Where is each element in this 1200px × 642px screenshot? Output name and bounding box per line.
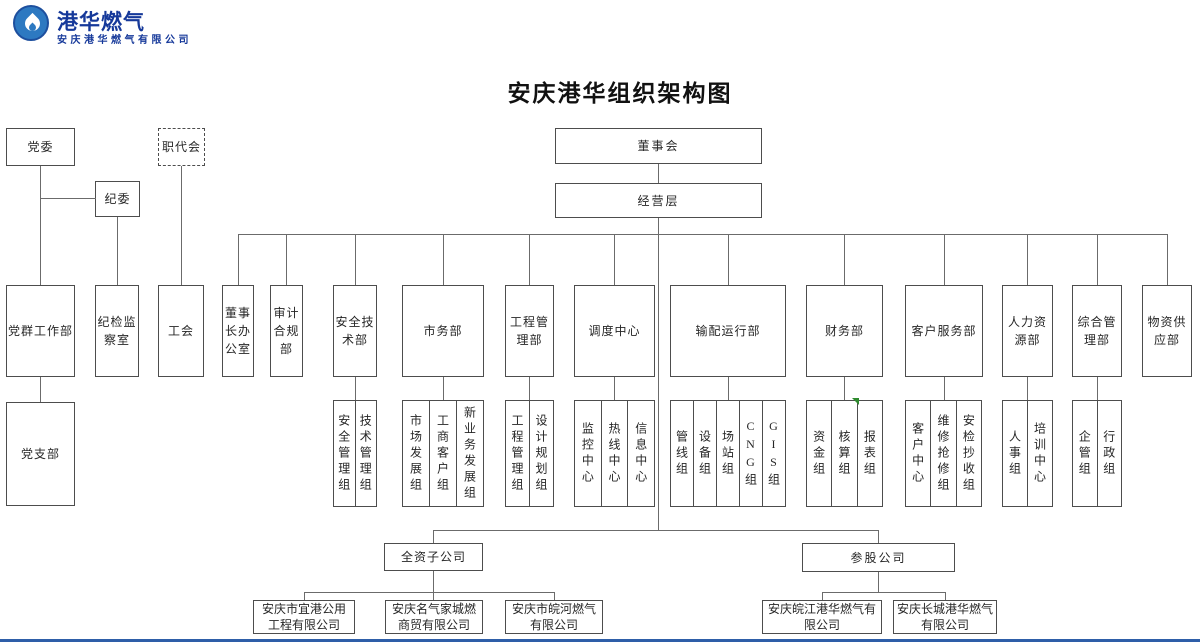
page-title: 安庆港华组织架构图 — [450, 74, 790, 108]
logo-company-name: 安庆港华燃气有限公司 — [57, 31, 192, 46]
box-invested-companies: 参股公司 — [802, 543, 955, 572]
team-reporting: 报表组 — [857, 400, 883, 507]
connector-line — [878, 572, 879, 592]
team-technology-management: 技术管理组 — [355, 400, 378, 507]
team-station: 场站组 — [716, 400, 740, 507]
connector-line — [40, 198, 96, 199]
connector-line — [355, 234, 356, 285]
connector-line — [728, 377, 729, 400]
connector-line — [1097, 377, 1098, 400]
team-training-center: 培训中心 — [1027, 400, 1053, 507]
box-management-level: 经营层 — [555, 183, 762, 218]
connector-line — [443, 377, 444, 400]
company-wanjiang-towngas: 安庆皖江港华燃气有 限公司 — [762, 600, 882, 634]
team-gis: GIS组 — [762, 400, 786, 507]
connector-line — [658, 218, 659, 530]
connector-line — [944, 234, 945, 285]
connector-line — [1027, 234, 1028, 285]
connector-line — [1027, 377, 1028, 400]
team-enterprise-management: 企管组 — [1072, 400, 1098, 507]
connector-line — [40, 377, 41, 402]
connector-line — [40, 166, 41, 285]
team-group-finance: 资金组 核算组 报表组 — [806, 400, 883, 507]
dept-chairman-office: 董事长办公室 — [222, 285, 254, 377]
connector-line — [822, 592, 823, 600]
team-customer-center: 客户中心 — [905, 400, 931, 507]
team-funds: 资金组 — [806, 400, 832, 507]
dept-audit-compliance: 审计合规部 — [270, 285, 303, 377]
org-chart-canvas: 港华燃气 安庆港华燃气有限公司 安庆港华组织架构图 党委 职代会 纪委 董事会 … — [0, 0, 1200, 642]
connector-line — [286, 234, 287, 285]
connector-line — [433, 530, 434, 543]
dept-safety-technology: 安全技术部 — [333, 285, 377, 377]
dept-market: 市务部 — [402, 285, 484, 377]
team-design-planning: 设计规划组 — [529, 400, 554, 507]
dept-dispatch-center: 调度中心 — [574, 285, 655, 377]
team-engineering-management: 工程管理组 — [505, 400, 530, 507]
connector-line — [728, 234, 729, 285]
team-safety-management: 安全管理组 — [333, 400, 356, 507]
team-new-business-development: 新业务发展组 — [456, 400, 484, 507]
dept-party-affairs: 党群工作部 — [6, 285, 75, 377]
connector-line — [878, 530, 879, 543]
team-equipment: 设备组 — [693, 400, 717, 507]
team-administration: 行政组 — [1097, 400, 1123, 507]
box-wholly-owned-subsidiaries: 全资子公司 — [384, 543, 483, 571]
connector-line — [433, 530, 879, 531]
team-group-hr: 人事组 培训中心 — [1002, 400, 1053, 507]
team-group-admin: 企管组 行政组 — [1072, 400, 1122, 507]
connector-line — [238, 234, 239, 285]
box-discipline-committee: 纪委 — [95, 181, 140, 217]
dept-labor-union: 工会 — [158, 285, 204, 377]
box-staff-congress: 职代会 — [158, 128, 205, 166]
dept-material-supply: 物资供应部 — [1142, 285, 1192, 377]
team-group-safety: 安全管理组 技术管理组 — [333, 400, 377, 507]
connector-line — [944, 377, 945, 400]
box-party-committee: 党委 — [6, 128, 75, 166]
team-group-distribution: 管线组 设备组 场站组 CNG组 GIS组 — [670, 400, 786, 507]
dept-customer-service: 客户服务部 — [905, 285, 983, 377]
team-cng: CNG组 — [739, 400, 763, 507]
connector-line — [1167, 234, 1168, 285]
connector-line — [117, 217, 118, 285]
dept-finance: 财务部 — [806, 285, 883, 377]
connector-line — [844, 377, 845, 400]
box-board-of-directors: 董事会 — [555, 128, 762, 164]
team-party-branch: 党支部 — [6, 402, 75, 506]
connector-line — [822, 592, 946, 593]
connector-line — [304, 592, 305, 600]
connector-line — [844, 234, 845, 285]
connector-line — [658, 164, 659, 183]
team-information-center: 信息中心 — [627, 400, 655, 507]
team-group-dispatch: 监控中心 热线中心 信息中心 — [574, 400, 655, 507]
connector-line — [554, 592, 555, 600]
dept-human-resources: 人力资源部 — [1002, 285, 1053, 377]
team-safety-inspection-meter-reading: 安检抄收组 — [956, 400, 982, 507]
connector-line — [529, 377, 530, 400]
dept-discipline-inspection-office: 纪检监察室 — [95, 285, 139, 377]
company-yigang-public-engineering: 安庆市宜港公用 工程有限公司 — [253, 600, 355, 634]
connector-line — [1097, 234, 1098, 285]
team-group-engineering: 工程管理组 设计规划组 — [505, 400, 554, 507]
dept-general-management: 综合管理部 — [1072, 285, 1122, 377]
towngas-flame-icon — [13, 5, 49, 41]
dept-engineering-management: 工程管理部 — [505, 285, 554, 377]
connector-line — [355, 377, 356, 400]
green-corner-marker — [852, 398, 859, 405]
team-repair-rescue: 维修抢修组 — [930, 400, 956, 507]
company-changcheng-towngas: 安庆长城港华燃气 有限公司 — [893, 600, 997, 634]
team-hotline-center: 热线中心 — [601, 400, 629, 507]
connector-line — [181, 166, 182, 285]
team-monitoring-center: 监控中心 — [574, 400, 602, 507]
connector-line — [238, 234, 1168, 235]
company-mingqijia-trading: 安庆名气家城燃 商贸有限公司 — [385, 600, 483, 634]
company-wanhe-gas: 安庆市皖河燃气 有限公司 — [505, 600, 603, 634]
connector-line — [443, 234, 444, 285]
team-pipeline: 管线组 — [670, 400, 694, 507]
connector-line — [529, 234, 530, 285]
connector-line — [304, 592, 555, 593]
team-group-customer: 客户中心 维修抢修组 安检抄收组 — [905, 400, 982, 507]
dept-distribution-operation: 输配运行部 — [670, 285, 786, 377]
team-group-market: 市场发展组 工商客户组 新业务发展组 — [402, 400, 484, 507]
team-commercial-customers: 工商客户组 — [429, 400, 457, 507]
connector-line — [945, 592, 946, 600]
connector-line — [614, 234, 615, 285]
team-market-development: 市场发展组 — [402, 400, 430, 507]
team-accounting: 核算组 — [831, 400, 857, 507]
connector-line — [433, 571, 434, 600]
connector-line — [614, 377, 615, 400]
team-personnel: 人事组 — [1002, 400, 1028, 507]
